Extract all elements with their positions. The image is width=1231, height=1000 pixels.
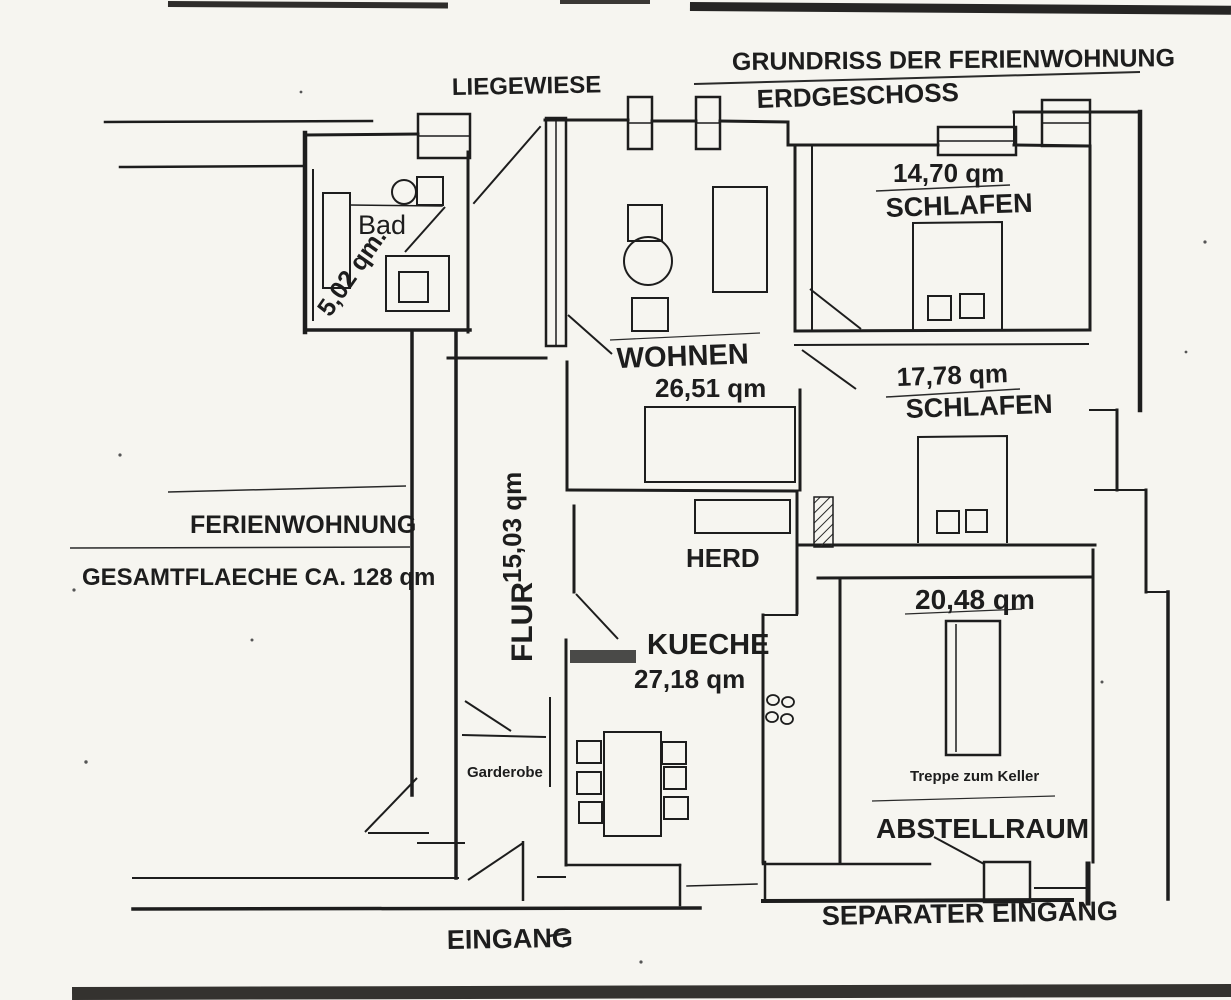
bed-icon — [913, 222, 1002, 330]
chair-icon — [632, 298, 668, 331]
room-name-wohnen: WOHNEN — [616, 338, 749, 375]
total-area-label: GESAMTFLAECHE CA. 128 qm — [82, 564, 435, 591]
door-flur-exterior — [365, 778, 417, 832]
garderobe-label: Garderobe — [467, 764, 543, 781]
chair-icon — [628, 205, 662, 241]
room-name-kueche: KUECHE — [647, 629, 769, 661]
window-wohnen-top-2 — [696, 97, 720, 149]
liegewiese-label: LIEGEWIESE — [452, 71, 602, 101]
window-wohnen-top-1 — [628, 97, 652, 149]
room-area-schlafen1: 14,70 qm — [893, 158, 1004, 188]
floorplan-page: GRUNDRISS DER FERIENWOHNUNG ERDGESCHOSS … — [0, 0, 1231, 1000]
cabinet-icon — [713, 187, 767, 292]
labels: GRUNDRISS DER FERIENWOHNUNG ERDGESCHOSS … — [82, 44, 1175, 955]
stove-burners-icon — [766, 695, 794, 724]
treppe-label: Treppe zum Keller — [910, 768, 1039, 785]
door-schlafen2 — [802, 350, 856, 389]
bed-icon — [918, 436, 1007, 543]
room-area-schlafen2: 17,78 qm — [896, 358, 1008, 392]
door-schlafen1 — [810, 289, 861, 329]
door-flur-kueche — [576, 594, 618, 639]
room-name-schlafen1: SCHLAFEN — [885, 188, 1033, 223]
stairs-icon — [946, 621, 1000, 755]
window-wohnen-west — [546, 118, 566, 346]
kueche-threshold — [570, 650, 636, 663]
toilet-icon — [392, 177, 443, 205]
page-subtitle: ERDGESCHOSS — [756, 77, 959, 114]
room-area-abstellraum: 20,48 qm — [915, 584, 1035, 615]
eingang-label: EINGANG — [447, 923, 574, 955]
room-area-kueche: 27,18 qm — [634, 664, 745, 694]
property-label: FERIENWOHNUNG — [190, 511, 416, 539]
counter-icon — [695, 500, 790, 533]
shower-icon — [386, 256, 449, 311]
herd-label: HERD — [686, 543, 760, 573]
room-area-flur: 15,03 qm — [497, 472, 527, 583]
window-schlafen1-top — [938, 127, 1016, 155]
sofa-icon — [645, 407, 795, 482]
room-name-abstellraum: ABSTELLRAUM — [876, 813, 1089, 844]
room-name-schlafen2: SCHLAFEN — [905, 389, 1053, 424]
window-bad-terrace — [418, 114, 470, 158]
door-bad — [405, 207, 445, 252]
page-title: GRUNDRISS DER FERIENWOHNUNG — [732, 44, 1175, 76]
dining-set-icon — [577, 732, 688, 836]
door-eingang — [468, 843, 523, 880]
door-garderobe — [465, 701, 511, 731]
separater-eingang-label: SEPARATER EINGANG — [822, 896, 1119, 931]
window-corner-top-right — [1042, 100, 1090, 146]
room-area-bad: 5,02 qm. — [312, 223, 392, 321]
furniture — [323, 177, 1007, 836]
door-flur-wohnen — [568, 315, 612, 354]
room-area-wohnen: 26,51 qm — [655, 373, 766, 403]
room-name-flur: FLUR — [506, 582, 539, 662]
floorplan-drawing: GRUNDRISS DER FERIENWOHNUNG ERDGESCHOSS … — [0, 0, 1231, 1000]
round-table-icon — [624, 237, 672, 285]
